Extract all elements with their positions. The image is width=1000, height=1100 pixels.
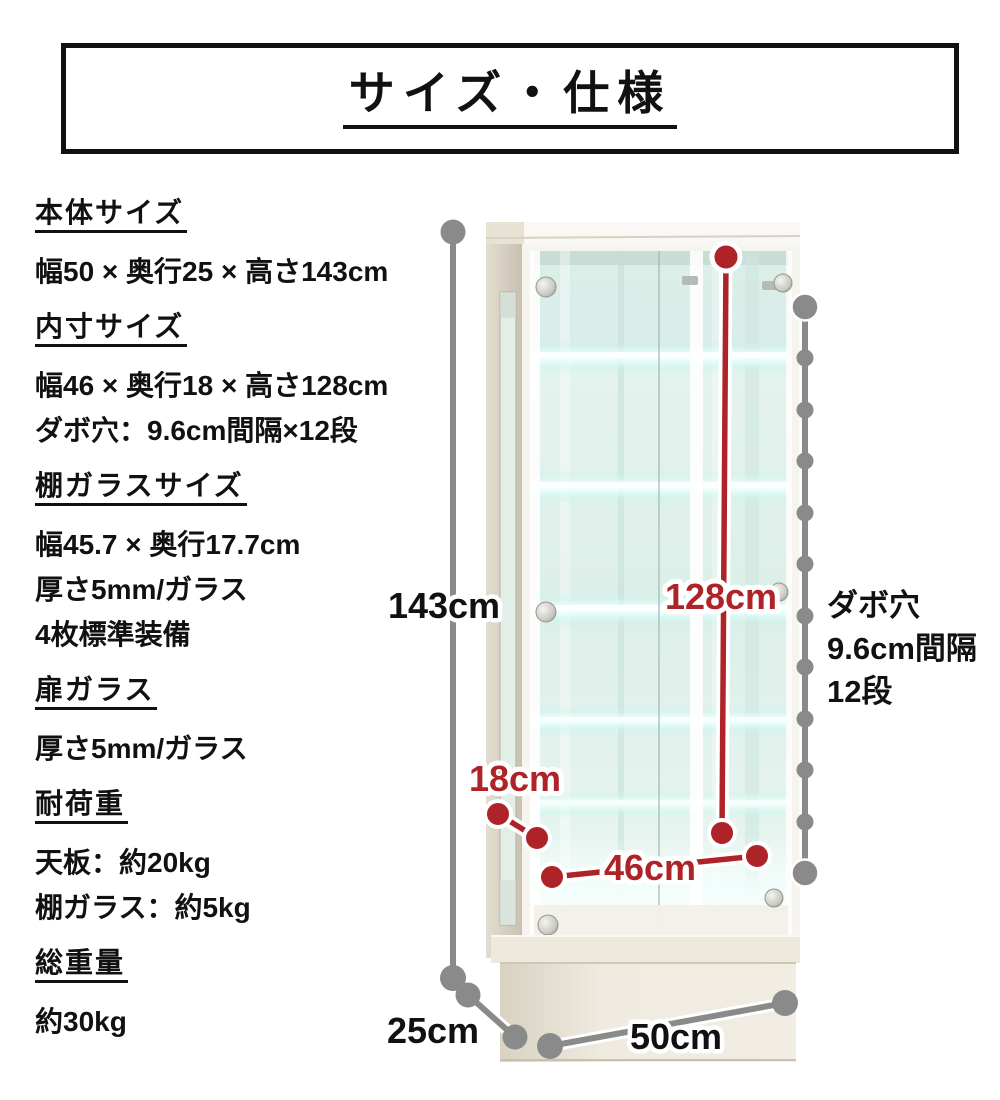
door-bottom-rail	[534, 905, 788, 935]
cabinet-diagram: 143cm 128cm 18cm 46cm 25cm 50cm ダボ穴 9.6c…	[0, 0, 1000, 1100]
dim-label-depth-inner: 18cm	[469, 758, 561, 799]
dabo-label-block: ダボ穴 9.6cm間隔 12段	[827, 588, 977, 709]
dabo-label-line1: ダボ穴	[827, 588, 920, 623]
dim-label-depth-total: 25cm	[387, 1010, 479, 1051]
dim-label-height-inner: 128cm	[665, 576, 777, 617]
cabinet-illustration	[486, 220, 800, 1062]
dabo-label-line2: 9.6cm間隔	[827, 631, 977, 666]
dim-label-width-inner: 46cm	[604, 847, 696, 888]
spec-sheet-page: サイズ・仕様 本体サイズ 幅50 × 奥行25 × 高さ143cm 内寸サイズ …	[0, 0, 1000, 1100]
dim-label-height-total: 143cm	[388, 585, 500, 626]
dabo-label-line3: 12段	[827, 674, 892, 709]
cabinet-top-panel	[486, 220, 800, 244]
dim-label-width-total: 50cm	[630, 1016, 722, 1057]
